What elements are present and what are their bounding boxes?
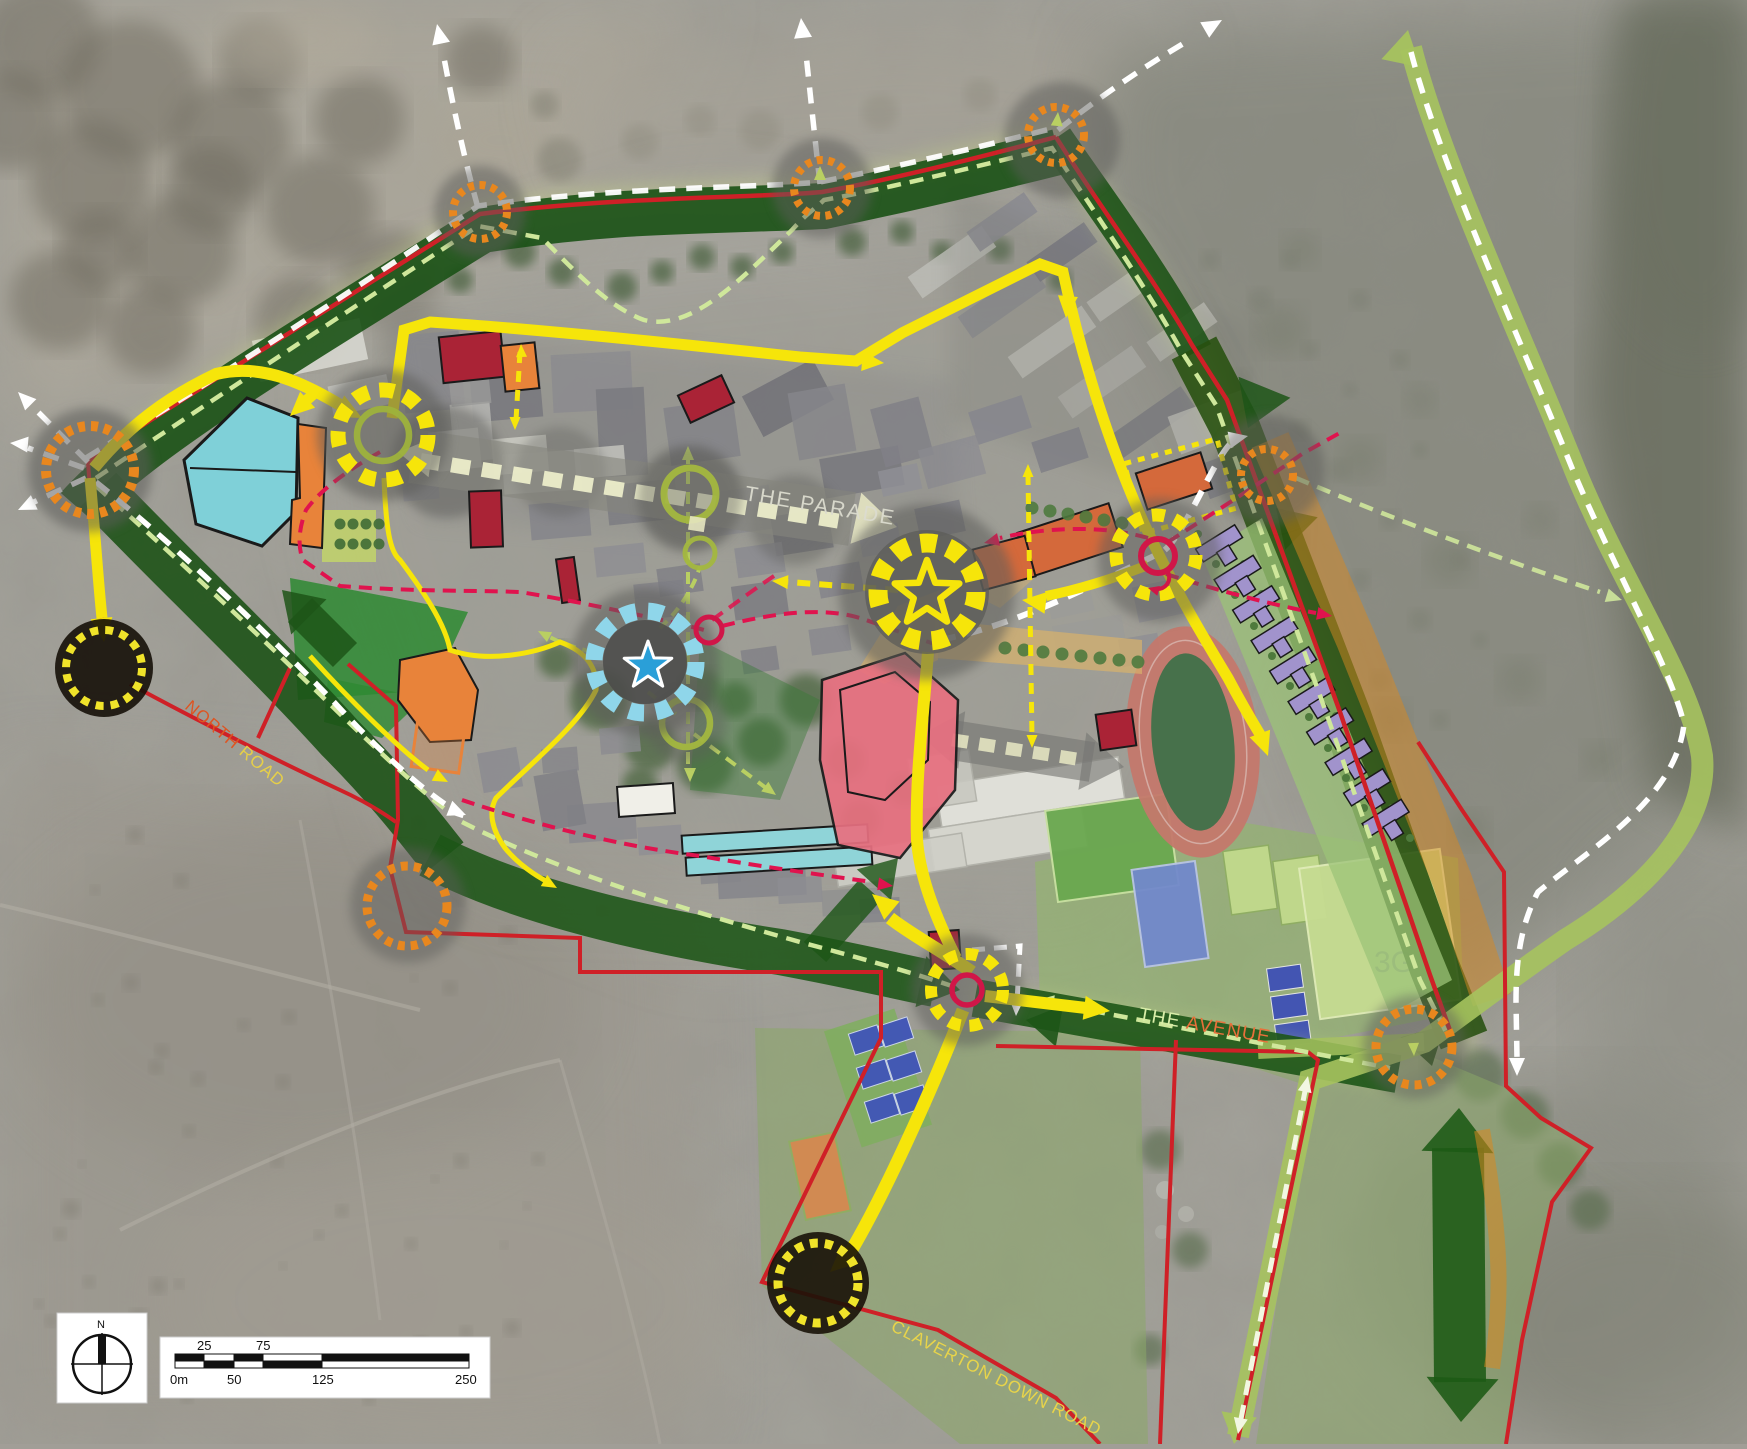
svg-text:125: 125: [312, 1372, 334, 1387]
svg-text:250: 250: [455, 1372, 477, 1387]
svg-text:0m: 0m: [170, 1372, 188, 1387]
svg-text:75: 75: [256, 1338, 270, 1353]
svg-text:N: N: [97, 1319, 105, 1331]
svg-text:50: 50: [227, 1372, 241, 1387]
svg-text:25: 25: [197, 1338, 211, 1353]
